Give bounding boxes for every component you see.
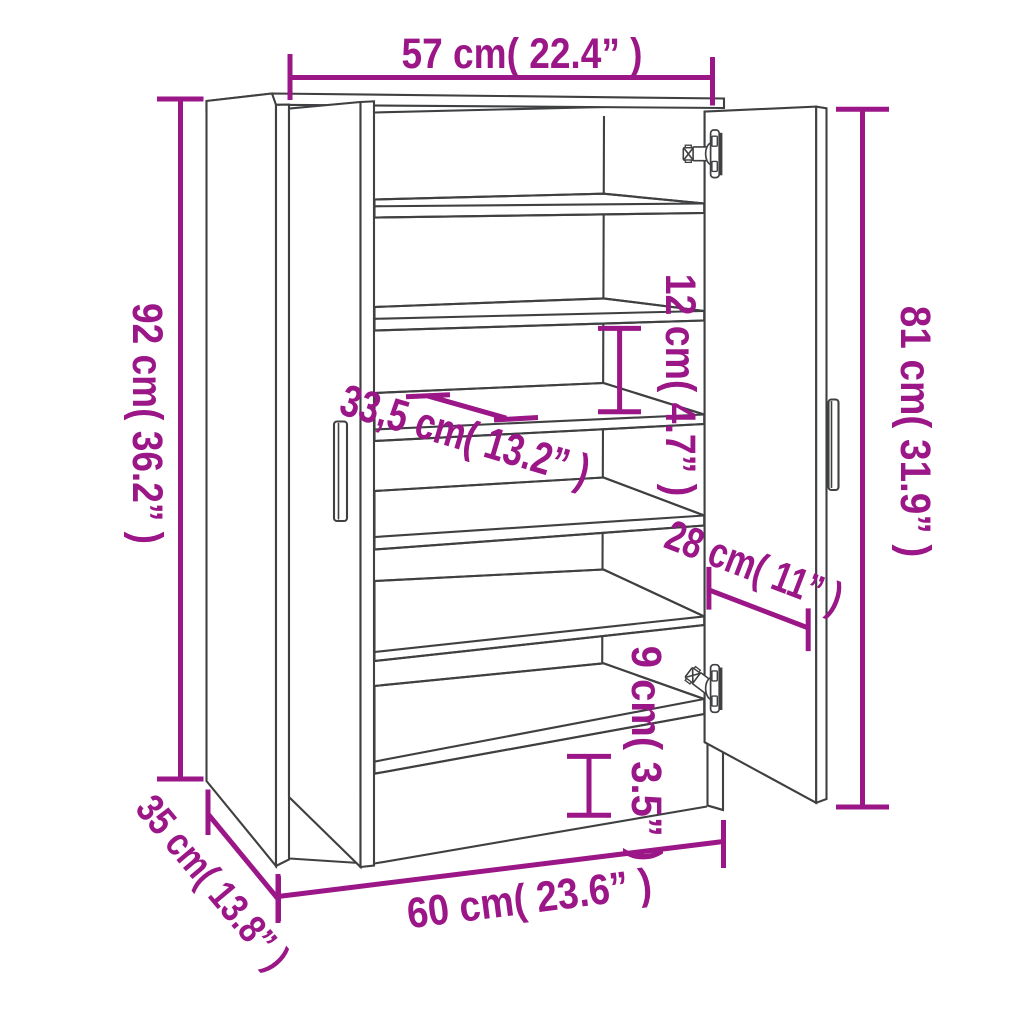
svg-text:12 cm( 4.7” ): 12 cm( 4.7” ) xyxy=(656,274,704,496)
svg-text:92 cm( 36.2” ): 92 cm( 36.2” ) xyxy=(123,303,171,544)
svg-text:81 cm( 31.9” ): 81 cm( 31.9” ) xyxy=(892,306,940,558)
svg-text:57 cm( 22.4” ): 57 cm( 22.4” ) xyxy=(402,29,643,77)
svg-text:9 cm( 3.5” ): 9 cm( 3.5” ) xyxy=(623,646,672,862)
